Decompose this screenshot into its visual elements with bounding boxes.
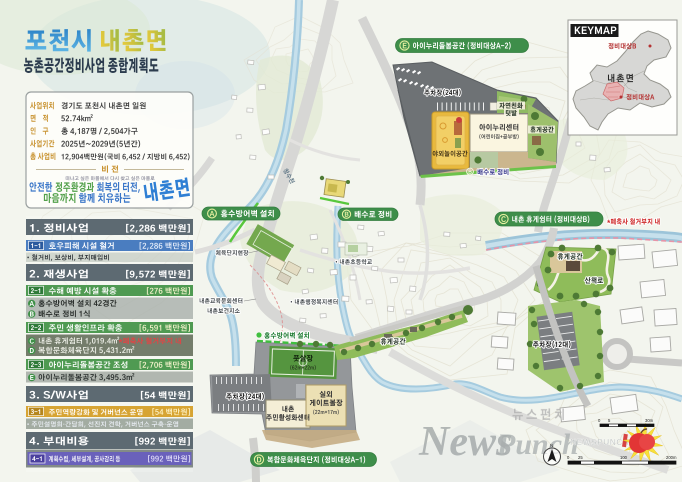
- svg-text:30m: 30m: [645, 418, 654, 423]
- svg-text:100: 100: [620, 455, 628, 460]
- svg-text:200m: 200m: [666, 455, 677, 460]
- svg-text:N: N: [550, 443, 553, 448]
- svg-text:25: 25: [578, 455, 583, 460]
- svg-text:NEWSPUNCH: NEWSPUNCH: [570, 437, 629, 447]
